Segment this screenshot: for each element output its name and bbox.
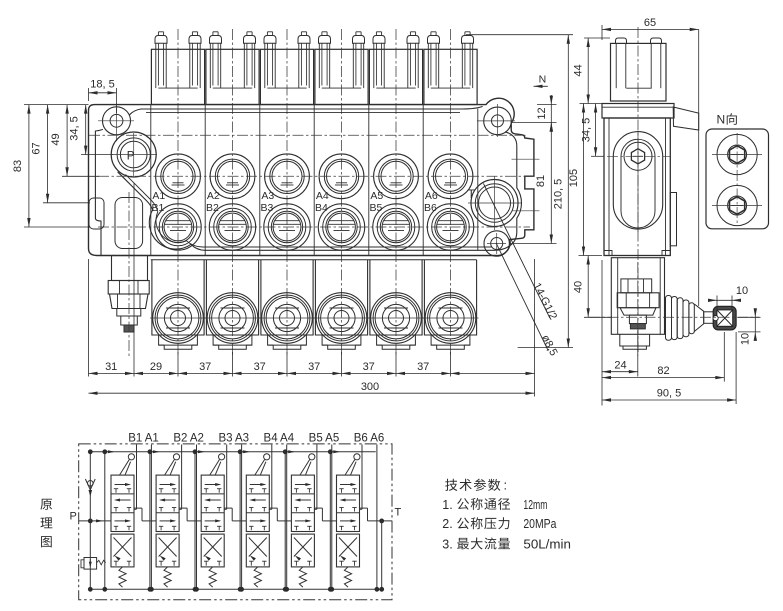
svg-text:300: 300 xyxy=(361,381,379,393)
svg-text:20MPa: 20MPa xyxy=(523,517,556,531)
svg-text:34, 5: 34, 5 xyxy=(69,116,81,140)
svg-text:37: 37 xyxy=(254,361,266,373)
svg-text:A4: A4 xyxy=(316,190,329,202)
svg-text:B1: B1 xyxy=(128,432,142,444)
svg-text:B6: B6 xyxy=(354,432,368,444)
svg-text:210, 5: 210, 5 xyxy=(553,179,565,210)
svg-text:10: 10 xyxy=(736,285,748,297)
svg-text:A1: A1 xyxy=(145,432,159,444)
svg-text:T: T xyxy=(395,507,402,519)
svg-text:37: 37 xyxy=(199,361,211,373)
svg-text:B5: B5 xyxy=(309,432,323,444)
svg-text:81: 81 xyxy=(535,175,547,187)
svg-text:90, 5: 90, 5 xyxy=(657,388,681,400)
svg-text:37: 37 xyxy=(417,361,429,373)
svg-text:B1: B1 xyxy=(152,202,165,214)
svg-text:B2: B2 xyxy=(173,432,187,444)
svg-text:B3: B3 xyxy=(218,432,232,444)
svg-text:A2: A2 xyxy=(207,190,220,202)
svg-text:P: P xyxy=(70,511,77,523)
svg-text:B4: B4 xyxy=(264,432,279,444)
svg-text:40: 40 xyxy=(573,281,585,293)
svg-text:44: 44 xyxy=(573,64,585,76)
svg-text:65: 65 xyxy=(644,17,656,29)
svg-text:A1: A1 xyxy=(152,190,165,202)
svg-text:A3: A3 xyxy=(235,432,249,444)
svg-text:67: 67 xyxy=(31,142,43,154)
svg-text:31: 31 xyxy=(105,361,117,373)
svg-text:A5: A5 xyxy=(370,190,383,202)
svg-text:N: N xyxy=(717,112,726,126)
svg-text::: : xyxy=(504,477,508,492)
svg-text:A4: A4 xyxy=(280,432,295,444)
svg-text:18, 5: 18, 5 xyxy=(90,79,114,91)
svg-text:10: 10 xyxy=(740,333,752,345)
svg-text:A2: A2 xyxy=(190,432,204,444)
svg-text:T: T xyxy=(468,189,475,201)
svg-text:24: 24 xyxy=(614,359,626,371)
svg-text:B4: B4 xyxy=(315,202,328,214)
svg-text:A6: A6 xyxy=(425,190,438,202)
svg-text:49: 49 xyxy=(50,133,62,145)
svg-text:B2: B2 xyxy=(206,202,219,214)
svg-text:37: 37 xyxy=(363,361,375,373)
svg-text:2.: 2. xyxy=(442,517,452,531)
svg-text:29: 29 xyxy=(150,361,162,373)
svg-text:B5: B5 xyxy=(370,202,383,214)
svg-text:B6: B6 xyxy=(424,202,437,214)
svg-text:50L/min: 50L/min xyxy=(523,537,571,551)
svg-text:105: 105 xyxy=(568,169,580,187)
svg-text:B3: B3 xyxy=(261,202,274,214)
svg-text:34, 5: 34, 5 xyxy=(581,118,593,142)
svg-text:37: 37 xyxy=(308,361,320,373)
svg-text:N: N xyxy=(539,74,547,86)
svg-text:3.: 3. xyxy=(442,537,452,551)
svg-text:A6: A6 xyxy=(370,432,384,444)
svg-text:12mm: 12mm xyxy=(523,498,547,512)
svg-text:A3: A3 xyxy=(261,190,274,202)
svg-text:1.: 1. xyxy=(442,498,452,512)
svg-text:12: 12 xyxy=(536,107,548,119)
svg-text:83: 83 xyxy=(12,160,24,172)
svg-text:A5: A5 xyxy=(325,432,339,444)
svg-text:82: 82 xyxy=(657,365,669,377)
